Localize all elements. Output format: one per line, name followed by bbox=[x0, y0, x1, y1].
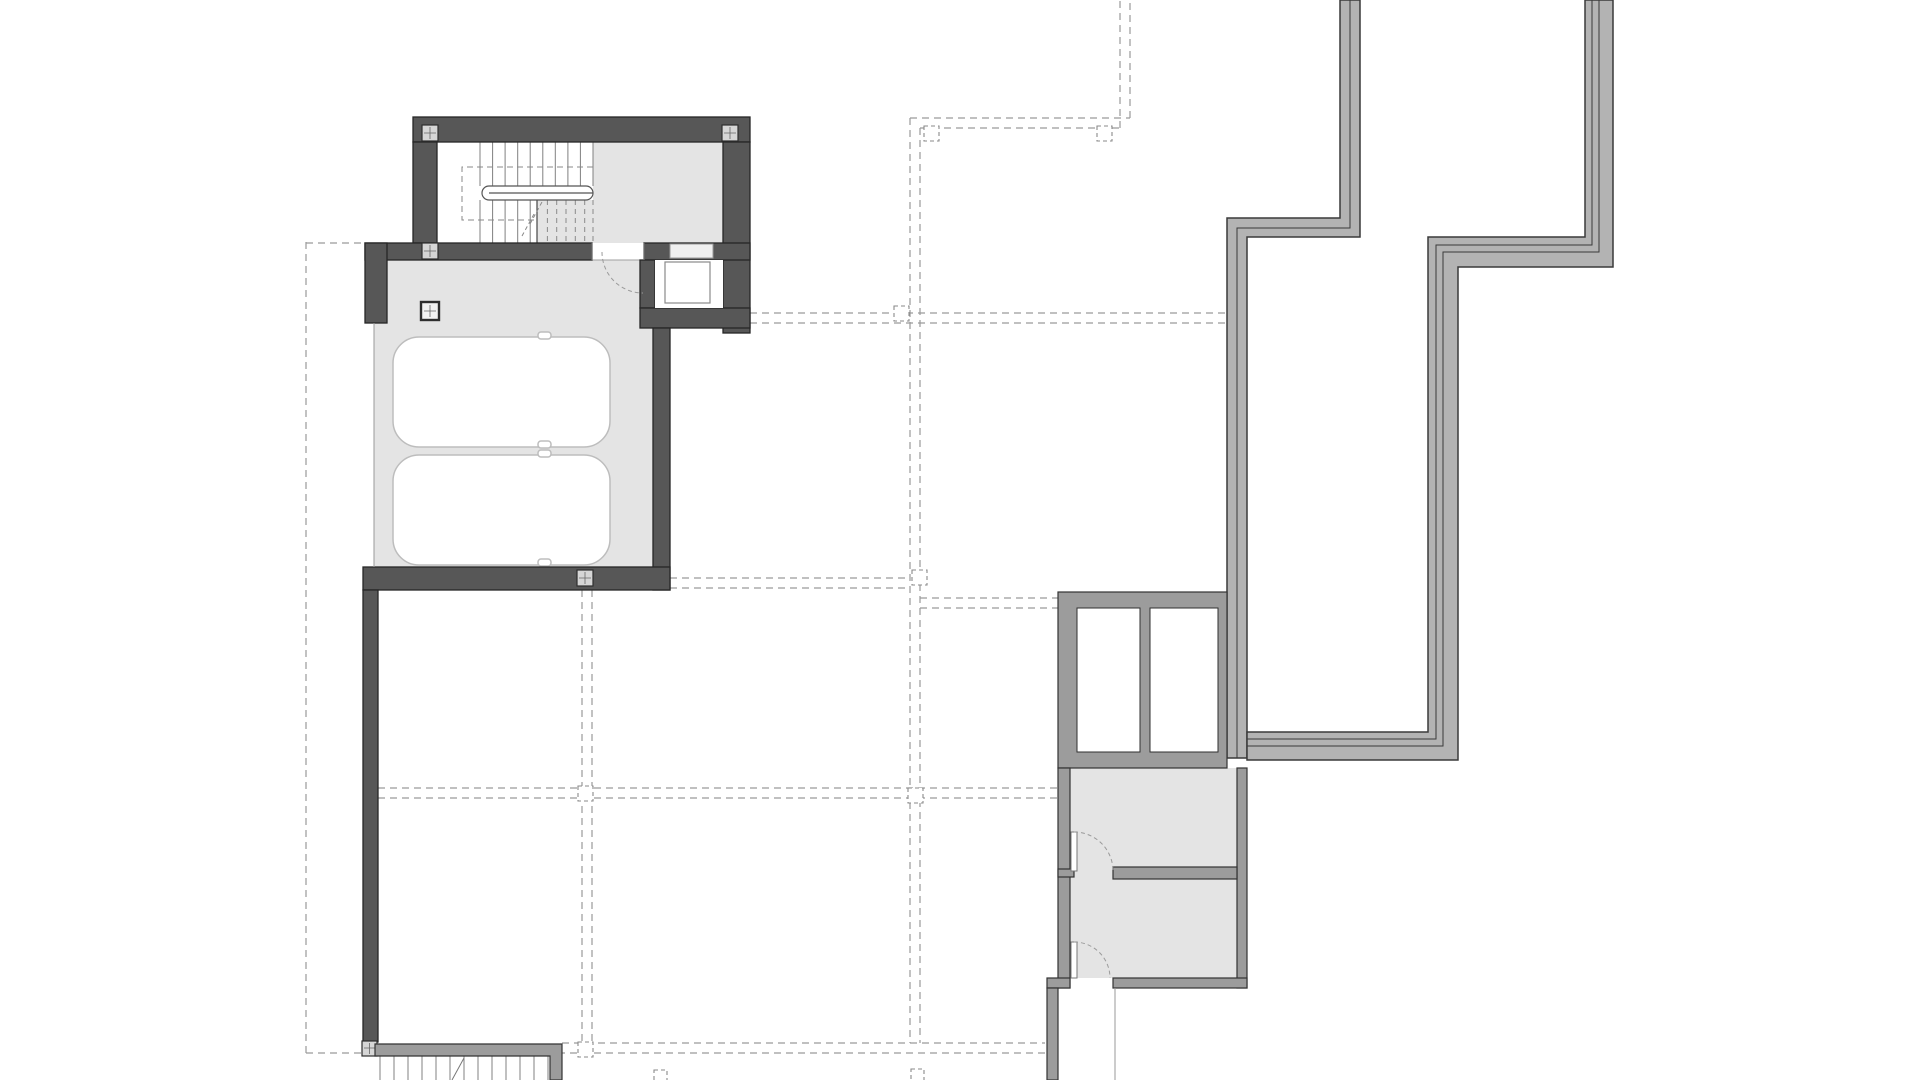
stair-lower-flight-treads bbox=[480, 200, 530, 243]
grid-horizontal-y578-pair bbox=[670, 578, 910, 588]
grid-horizontal-y598-pair bbox=[920, 598, 1058, 608]
terrace-wall-right-layer-line2 bbox=[1247, 0, 1592, 739]
exterior-wall-jog bbox=[1047, 978, 1070, 988]
car-bottom-mirror-upper bbox=[538, 450, 551, 457]
exterior-stair-treads bbox=[380, 1056, 548, 1080]
exterior-wall-lower bbox=[1047, 988, 1058, 1080]
window-well-panel-left bbox=[1077, 608, 1140, 752]
grid-horizontal-y313-pair bbox=[750, 313, 1227, 323]
grid-vertical-x582-pair bbox=[582, 590, 592, 1053]
property-line-left bbox=[306, 242, 365, 1053]
terrace-wall-right-zigzag bbox=[1247, 0, 1613, 760]
exterior-stair-direction-tick bbox=[452, 1058, 464, 1080]
wall-stair-left bbox=[413, 142, 437, 243]
grid-vertical-top-right-pair bbox=[1120, 0, 1130, 128]
car-top bbox=[393, 337, 610, 447]
elevator-car bbox=[665, 262, 710, 303]
column-marker bbox=[422, 125, 438, 141]
column-marker-freestanding bbox=[421, 302, 439, 320]
window-well-panel-right bbox=[1150, 608, 1218, 752]
grid-marker bbox=[924, 126, 939, 141]
grid-marker bbox=[908, 788, 923, 803]
car-bottom-mirror-lower bbox=[538, 559, 551, 566]
car-top-mirror-upper bbox=[538, 332, 551, 339]
wall-garage-bottom bbox=[363, 567, 670, 590]
grid-horizontal-y788-pair bbox=[378, 788, 1058, 798]
terrace-wall-right-layer-line bbox=[1247, 0, 1599, 746]
storage-partition-wall bbox=[1113, 867, 1237, 879]
wall-shaft-left bbox=[640, 260, 655, 308]
floor-plan-canvas bbox=[0, 0, 1920, 1080]
wall-shaft-bottom bbox=[640, 308, 750, 328]
wall-left-lower bbox=[363, 590, 378, 1042]
wall-right bbox=[723, 142, 750, 333]
storage-wall-right bbox=[1237, 768, 1247, 988]
elevator-door bbox=[670, 244, 713, 258]
car-bottom bbox=[393, 455, 610, 565]
storage-block bbox=[1047, 592, 1247, 1080]
grid-marker bbox=[654, 1070, 667, 1080]
storage-wall-bottom bbox=[1113, 978, 1247, 988]
grid-marker bbox=[911, 1069, 924, 1080]
column-marker bbox=[722, 125, 738, 141]
wall-garage-right bbox=[653, 328, 670, 590]
grid-marker bbox=[578, 1042, 593, 1057]
column-marker bbox=[422, 243, 438, 259]
terrace-retaining-walls bbox=[1227, 0, 1613, 760]
wall-left-stub bbox=[365, 243, 387, 323]
wall-garage-top bbox=[365, 243, 592, 260]
door-leaf bbox=[1071, 832, 1077, 871]
exterior-stair bbox=[375, 1044, 562, 1080]
stair-upper-flight-treads bbox=[480, 142, 593, 186]
storage-wall-left bbox=[1058, 768, 1070, 988]
grid-marker bbox=[1097, 126, 1112, 141]
car-top-mirror-lower bbox=[538, 441, 551, 448]
terrace-wall-left-layer-line bbox=[1237, 0, 1350, 758]
grid-marker bbox=[894, 306, 909, 321]
terrace-wall-left-zigzag bbox=[1227, 0, 1360, 758]
column-marker bbox=[577, 570, 593, 586]
grid-marker bbox=[578, 786, 593, 801]
wall-top bbox=[413, 117, 750, 142]
door-leaf bbox=[1071, 942, 1077, 978]
grid-marker bbox=[912, 570, 927, 585]
